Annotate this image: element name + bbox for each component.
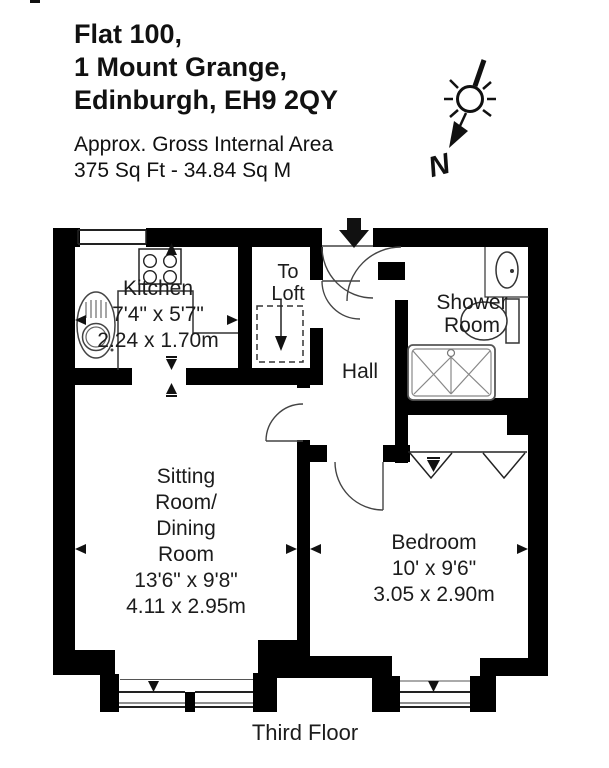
- wardrobe-recess-marks: [408, 452, 527, 478]
- window-bays: [119, 680, 470, 708]
- address-line: 1 Mount Grange,: [74, 51, 338, 84]
- entrance-arrow-icon: [339, 218, 369, 248]
- room-name-line: Dining: [126, 516, 246, 542]
- room-dimensions-metric: 4.11 x 2.95m: [126, 594, 246, 620]
- room-dimensions-metric: 3.05 x 2.90m: [373, 582, 494, 608]
- room-name-line: Sitting: [126, 464, 246, 490]
- room-dimensions-metric: 2.24 x 1.70m: [97, 328, 218, 354]
- title-block: Flat 100, 1 Mount Grange, Edinburgh, EH9…: [74, 18, 338, 184]
- address-line: Edinburgh, EH9 2QY: [74, 84, 338, 117]
- gross-area-label: Approx. Gross Internal Area: [74, 132, 338, 158]
- sitting-room-label: Sitting Room/ Dining Room 13'6" x 9'8" 4…: [126, 464, 246, 620]
- shower-tray: [408, 345, 495, 400]
- floor-caption: Third Floor: [252, 720, 358, 746]
- address-line: Flat 100,: [74, 18, 338, 51]
- room-name: Kitchen: [97, 276, 218, 302]
- loft-hatch-icon: [257, 300, 303, 362]
- sitting-door-arc: [266, 404, 303, 441]
- window-kitchen: [78, 230, 146, 244]
- gross-area-value: 375 Sq Ft - 34.84 Sq M: [74, 158, 338, 184]
- print-artifact: [30, 0, 40, 3]
- floorplan-page: Flat 100, 1 Mount Grange, Edinburgh, EH9…: [0, 0, 609, 768]
- room-name-line: Room: [436, 314, 507, 337]
- loft-label-line: To: [271, 261, 304, 283]
- kitchen-label: Kitchen 7'4" x 5'7" 2.24 x 1.70m: [97, 276, 218, 354]
- wash-basin: [485, 247, 529, 297]
- room-dimensions-imperial: 10' x 9'6": [373, 556, 494, 582]
- room-name-line: Room: [126, 542, 246, 568]
- room-name-line: Shower: [436, 291, 507, 314]
- bedroom-door-arc: [335, 462, 383, 510]
- sun-circle: [458, 87, 483, 112]
- loft-label-line: Loft: [271, 283, 304, 305]
- room-dimensions-imperial: 13'6" x 9'8": [126, 568, 246, 594]
- shower-room-label: Shower Room: [436, 291, 507, 337]
- bedroom-label: Bedroom 10' x 9'6" 3.05 x 2.90m: [373, 530, 494, 608]
- north-arrow-icon: [449, 121, 468, 148]
- room-name-line: Room/: [126, 490, 246, 516]
- room-name: Bedroom: [373, 530, 494, 556]
- hall-label: Hall: [342, 359, 378, 385]
- room-name: Hall: [342, 359, 378, 385]
- loft-label: To Loft: [271, 261, 304, 305]
- room-dimensions-imperial: 7'4" x 5'7": [97, 302, 218, 328]
- compass-icon: [444, 60, 496, 148]
